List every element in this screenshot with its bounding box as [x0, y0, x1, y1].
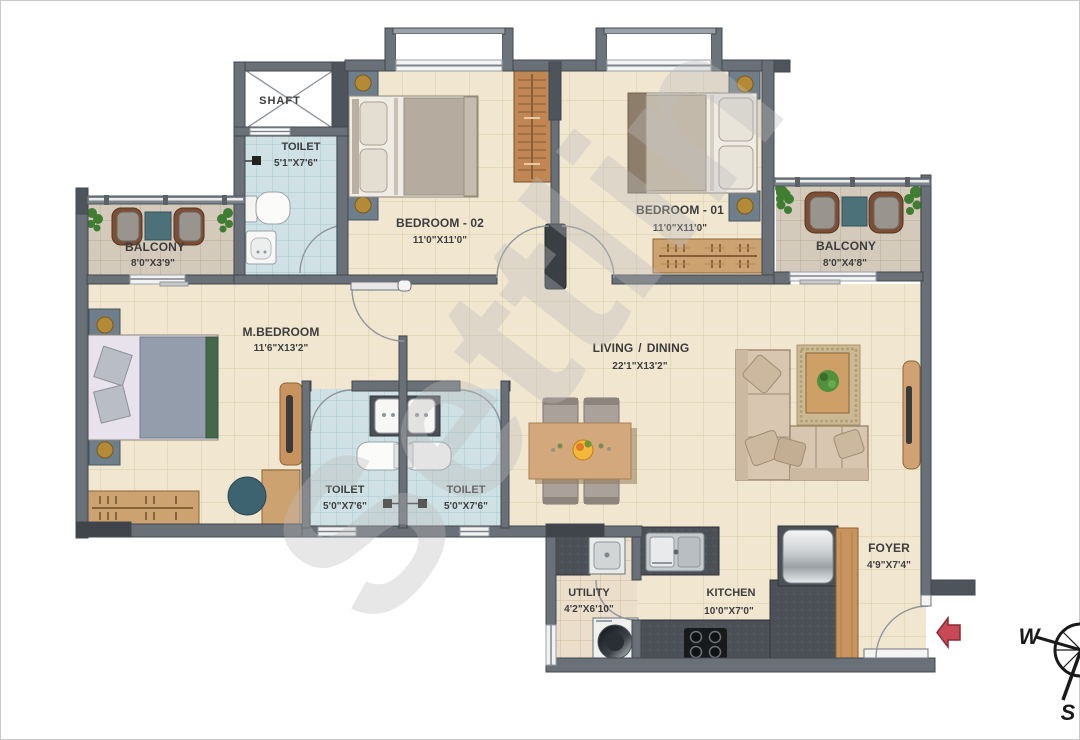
svg-text:FOYER: FOYER: [868, 541, 910, 555]
svg-text:KITCHEN: KITCHEN: [707, 587, 756, 599]
svg-text:SHAFT: SHAFT: [259, 95, 301, 107]
svg-text:TOILET: TOILET: [282, 141, 321, 153]
svg-text:5'1"X7'6": 5'1"X7'6": [274, 158, 318, 169]
svg-text:11'6"X13'2": 11'6"X13'2": [254, 343, 309, 354]
svg-text:8'0"X4'8": 8'0"X4'8": [823, 258, 867, 269]
svg-text:UTILITY: UTILITY: [568, 587, 610, 599]
svg-text:8'0"X3'9": 8'0"X3'9": [131, 258, 175, 269]
svg-text:BALCONY: BALCONY: [816, 239, 876, 253]
svg-text:4'9"X7'4": 4'9"X7'4": [867, 560, 911, 571]
svg-text:W: W: [1019, 624, 1042, 649]
svg-text:M.BEDROOM: M.BEDROOM: [243, 325, 320, 339]
svg-text:10'0"X7'0": 10'0"X7'0": [704, 606, 754, 617]
svg-text:BALCONY: BALCONY: [125, 240, 185, 254]
svg-text:4'2"X6'10": 4'2"X6'10": [564, 604, 614, 615]
svg-text:S: S: [1061, 700, 1076, 725]
